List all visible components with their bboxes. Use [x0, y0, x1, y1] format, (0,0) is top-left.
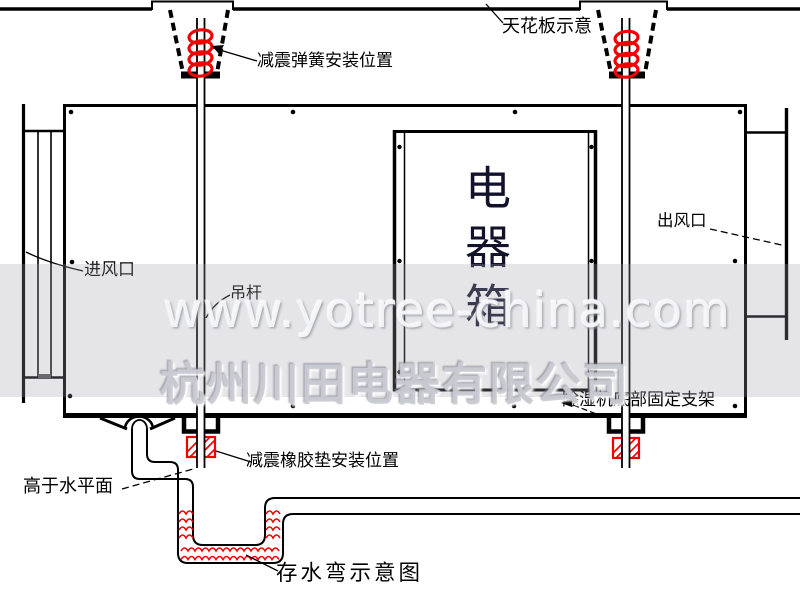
label-air-outlet: 出风口	[657, 212, 707, 230]
installation-diagram: 天花板示意 减震弹簧安装位置 进风口 吊杆 出风口 除湿机底部固定支架 减震橡胶…	[0, 0, 800, 600]
label-ceiling: 天花板示意	[502, 17, 592, 37]
label-spring-mount: 减震弹簧安装位置	[257, 52, 393, 71]
label-above-water-level: 高于水平面	[23, 477, 113, 497]
drain-pan-funnel	[100, 417, 175, 430]
label-rubber-pad-mount: 减震橡胶垫安装位置	[246, 452, 399, 471]
bottom-fixing-brackets	[184, 417, 643, 432]
watermark-url-text: www.yotree-china.com	[163, 283, 731, 339]
watermark-company-text: 杭州川田电器有限公司	[160, 348, 630, 413]
drain-pipe-trap	[132, 429, 800, 563]
ceiling-line	[0, 2, 800, 11]
label-water-trap: 存水弯示意图	[276, 562, 423, 586]
